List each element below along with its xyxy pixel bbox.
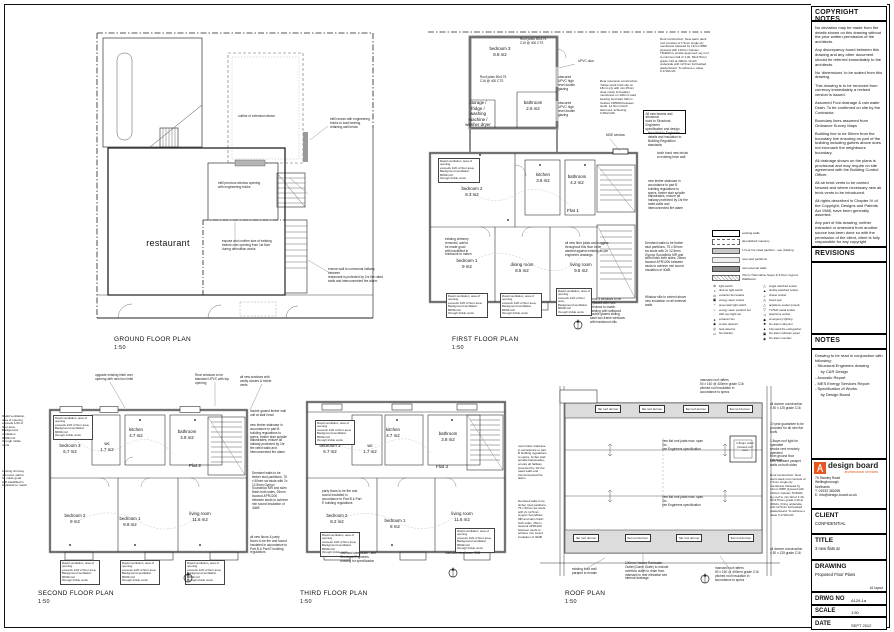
room-label-bathroom-top: bathroom 2.6 m2: [524, 100, 543, 111]
legend-symbol-icon: ◎: [712, 327, 717, 331]
legend: existing walls demolished masonry 1 hour…: [712, 230, 808, 342]
annotation-rear-windows: Rear windows to be standard UPVC with to…: [195, 374, 233, 386]
room-label-flat3: Flat 3: [436, 465, 448, 471]
copyright-paragraph: Building line to be 50mm from the bounda…: [815, 132, 883, 156]
legend-symbol-label: 13a rated fire extinguisher: [769, 328, 801, 331]
legend-symbol-label: TV/SAT aerial socket: [769, 309, 795, 312]
legend-symbol-icon: ◉: [712, 322, 717, 326]
legend-symbol-label: fire alarm sounder: [769, 337, 792, 340]
third-floor-plan-title: THIRD FLOOR PLAN 1:50: [300, 590, 368, 606]
annotation-staircase: new timber staircase in accordance to pa…: [648, 180, 688, 211]
firm-address: 76 Stanley RoadWellingboroughNorthantsT.…: [812, 474, 886, 497]
annotation-new-wall: New Wall to Engineers details and insula…: [648, 132, 682, 147]
legend-wall-row: existing walls: [712, 230, 808, 237]
legend-symbols-right: △ single switched socket ▲ double switch…: [762, 284, 808, 342]
annotation-rapid-vent-1: Rapid ventilation, area of opening excee…: [438, 158, 480, 183]
annotation-mansard-see: mansard steelbeam - see Structural Engin…: [340, 552, 388, 564]
legend-symbol-icon: ▲: [762, 327, 767, 331]
legend-symbol-icon: ◑: [712, 289, 717, 293]
date-value: SEPT 2012: [851, 620, 871, 628]
legend-symbol-icon: ▽: [762, 308, 767, 312]
annotation-front-parapet: existing front wall parapet to remain: [572, 568, 606, 576]
legend-symbol-icon: △: [762, 303, 767, 307]
drawing-value: Proposed Floor Plans: [812, 570, 886, 579]
plan-scale-text: 1:50: [114, 345, 191, 352]
plan-title-text: SECOND FLOOR PLAN: [38, 590, 114, 599]
drawing-sheet: restaurant outline of extension above in…: [0, 0, 894, 632]
drwg-no-value: A129-1a: [851, 595, 866, 603]
copyright-body: No deviation may be made from the detail…: [811, 21, 887, 247]
annotation-rapid-vent-3: Rapid ventilation, area of opening excee…: [455, 528, 495, 553]
drwg-no-section: DRWG NO A129-1a: [811, 592, 887, 605]
legend-wall-row: new stud partitions: [712, 257, 808, 264]
legend-symbol-row: ■ fire alarm call point: [762, 322, 808, 326]
legend-symbol-icon: ▣: [762, 332, 767, 336]
annotation-joist-span-1: new flat roof joists max. span 3m - see …: [662, 440, 704, 452]
revisions-header: REVISIONS: [811, 247, 887, 262]
plan-title-text: GROUND FLOOR PLAN: [114, 336, 191, 345]
annotation-rainwater-outlet: 100mm Harmer Rainwater Outlet (Dome Grat…: [625, 562, 670, 581]
room-label-bathroom: bathroom 4.2 m2: [568, 174, 587, 185]
dormer-label: flat roof dormer: [639, 405, 665, 413]
legend-symbol-icon: ▭: [712, 332, 717, 336]
room-label-dining: dining room 8.5 m2: [511, 262, 534, 273]
legend-symbol-icon: ◁: [762, 313, 767, 317]
legend-symbol-row: ◉ smoke detector: [712, 322, 758, 326]
plan-title-text: ROOF PLAN: [565, 590, 605, 599]
annotation-chimney: existing chimney removed, wall to be mad…: [445, 238, 473, 257]
wall-type-swatch: [712, 239, 740, 246]
annotation-dormer-construction-2: all dormer construction 4 50 x 125 grade…: [770, 548, 806, 556]
wall-type-swatch: [712, 257, 740, 264]
legend-symbol-label: light switch: [719, 285, 733, 288]
annotation-floors: all new floors & party floors to be fire…: [250, 536, 288, 555]
legend-symbol-label: LED spot light set: [719, 313, 741, 316]
legend-wall-row: 70mm Thermaline Super & 9.5mm Gyproc Wal…: [712, 274, 808, 281]
notes-line: by Design Board: [815, 393, 883, 398]
annotation-party-floors: party floors to be fire and sound insula…: [322, 490, 366, 505]
legend-symbol-label: extractor fan isolator: [719, 294, 744, 297]
copyright-paragraph: No deviation may be made from the detail…: [815, 26, 883, 45]
annotation-infill-window: infill previous window opening with engi…: [218, 182, 264, 190]
legend-symbol-label: fused spur: [769, 299, 782, 302]
legend-symbol-label: energy saver pendant set: [719, 309, 751, 312]
dormer-label: flat roof dormer: [728, 534, 754, 542]
room-label-wc: wc 1.7 m2: [100, 441, 113, 452]
wall-type-label: demolished masonry: [742, 240, 770, 243]
legend-symbol-label: fire alarm call point: [769, 323, 792, 326]
annotation-stair-glazed: double glazed timber wall unit at stair …: [250, 410, 290, 418]
legend-symbol-icon: ▲: [762, 289, 767, 293]
scale-section: SCALE 1:50: [811, 605, 887, 617]
legend-symbol-icon: ■: [762, 322, 767, 326]
notes-body: Drawing to be read in conjunction with f…: [811, 349, 887, 459]
annotation-rapid-vent-1: Rapid ventilation, area of opening excee…: [315, 420, 355, 445]
client-value: CONFIDENTIAL: [812, 519, 886, 528]
legend-wall-types: existing walls demolished masonry 1 hour…: [712, 230, 808, 281]
room-label-bedroom1: bedroom 1 9.8 m2: [120, 516, 141, 527]
room-label-living: living room 11.6 m2: [189, 511, 210, 522]
wall-type-swatch: [712, 230, 740, 237]
annotation-rafters-bottom: mansard roof rafters 50 x 150 @ 400mm gr…: [715, 567, 760, 582]
annotation-roof-joists-2: Roof joists 50x175 C16 @ 400 CTS: [480, 76, 512, 84]
copyright-paragraph: All drainage shown on the plans is provi…: [815, 159, 883, 178]
annotation-fire-wall: ensure wall to communal hallway between …: [328, 268, 386, 283]
roof-plan-title: ROOF PLAN 1:50: [565, 590, 605, 606]
first-floor-plan-title: FIRST FLOOR PLAN 1:50: [452, 336, 518, 352]
annotation-rafters-top: mansard roof rafters 50 x 150 @ 400mm gr…: [700, 379, 750, 394]
annotation-existing-beams: expose and confirm size of existing beam…: [222, 240, 274, 252]
annotation-obscured-glazing-1: obscured UPVC high level double glazing: [558, 76, 578, 91]
annotation-upvc-door: UPVC door: [578, 60, 602, 64]
client-section: CLIENT CONFIDENTIAL: [811, 509, 887, 534]
legend-symbol-label: heat detector: [719, 328, 735, 331]
roof-dormers-top: flat roof dormerflat roof dormerflat roo…: [595, 405, 753, 413]
wall-type-label: 1 hour fire rated partition - see drawin…: [742, 249, 794, 252]
legend-symbol-label: smoke detector: [719, 323, 738, 326]
copyright-paragraph: Boundary lines assumed from Ordnance Sur…: [815, 119, 883, 128]
room-label-bathroom: bathroom 3.8 m2: [178, 429, 197, 440]
north-arrow-icon: [700, 572, 710, 584]
legend-symbol-label: fire alarm indicator panel: [769, 332, 800, 335]
annotation-floor-joists: all new floor joists and noggins through…: [565, 242, 609, 257]
annotation-rapid-vent-4: Rapid ventilation, area of opening excee…: [556, 288, 592, 316]
legend-symbol-row: △ appliance socket (noted): [762, 303, 808, 307]
drwg-no-label: DRWG NO: [812, 594, 851, 604]
design-board-logo: [814, 462, 826, 474]
date-section: DATE SEPT 2012: [811, 617, 887, 630]
annotation-moe-window: MOE window: [606, 134, 632, 138]
legend-symbol-row: ◬ fused spur: [762, 298, 808, 302]
legend-wall-row: demolished masonry: [712, 239, 808, 246]
legend-symbol-label: appliance socket (noted): [769, 304, 799, 307]
plan-title-text: THIRD FLOOR PLAN: [300, 590, 368, 599]
firm-name: design board: [828, 462, 878, 470]
room-label-bedroom3: bedroom 3 8.8 m2: [490, 46, 511, 57]
dormer-label: flat roof dormer: [683, 405, 709, 413]
legend-symbol-icon: ●: [712, 318, 717, 322]
legend-symbol-icon: ◌: [712, 313, 717, 317]
room-label-bedroom1: bedroom 1 8 m2: [385, 518, 406, 529]
title-section: TITLE 3 new flats at: [811, 534, 887, 560]
annotation-roof-construction: Roof construction: New warm deck roof co…: [770, 474, 806, 517]
scale-label: SCALE: [812, 606, 851, 616]
room-label-kitchen: kitchen 4.7 m2: [129, 427, 143, 438]
room-label-bedroom2: bedroom 2 8.3 m2: [462, 186, 483, 197]
annotation-dormer-construction-1: all dormer construction 4 50 x 125 grade…: [770, 403, 806, 411]
legend-symbols: ⊘ light switch ◑ dimmer light switch ⊙ e…: [712, 284, 808, 342]
legend-wall-row: 1 hour fire rated partition - see drawin…: [712, 248, 808, 255]
ground-floor-plan-title: GROUND FLOOR PLAN 1:50: [114, 336, 191, 352]
notes-header: NOTES: [811, 334, 887, 349]
room-label-bedroom3: bedroom 3 6.7 m2: [60, 443, 81, 454]
annotation-rapid-vent-3: Rapid ventilation, area of opening excee…: [120, 560, 160, 585]
legend-symbol-row: ▣ energy saver socket: [712, 298, 758, 302]
legend-wall-row: new external walls: [712, 266, 808, 273]
room-label-living: living room 11.6 m2: [451, 511, 472, 522]
plan-scale-text: 1:50: [452, 345, 518, 352]
annotation-lintel: upgrade existing lintel over opening wit…: [95, 374, 139, 382]
title-label: TITLE: [812, 535, 886, 544]
legend-symbol-label: pneumatic light switch: [719, 304, 746, 307]
annotation-window-sills: Window sills to extend above new insulat…: [645, 296, 687, 308]
legend-symbols-left: ⊘ light switch ◑ dimmer light switch ⊙ e…: [712, 284, 758, 342]
annotation-staircase: new timber staircase in accordance to pa…: [250, 424, 288, 455]
title-value: 3 new flats at: [812, 544, 886, 553]
annotation-infill-recess: infill recess with engineering bricks to…: [330, 118, 384, 130]
annotation-roof-joists-1: Roof joists 50x175 C16 @ 400 CTS: [520, 38, 552, 46]
annotation-parapet-walls: new mansard parapet walls on both sides: [770, 460, 806, 468]
title-block: COPYRIGHT NOTES No deviation may be made…: [811, 4, 887, 628]
legend-symbol-label: telephone socket: [769, 313, 790, 316]
copyright-paragraph: Any part of this drawing, neither extrac…: [815, 221, 883, 249]
plan-scale-text: 1:50: [300, 599, 368, 606]
annotation-extension-outline: outline of extension above: [238, 115, 278, 119]
legend-symbol-icon: ◔: [712, 303, 717, 307]
annotation-rapid-vent-1: Rapid ventilation, area of opening excee…: [53, 415, 93, 440]
annotation-velux-vent: 1.8sqm velux pivoted roof vent: [733, 442, 757, 453]
wall-type-label: existing walls: [742, 232, 760, 235]
room-label-flat2: Flat 2: [189, 464, 201, 470]
dormer-label: flat roof dormer: [573, 534, 599, 542]
room-label-flat1: Flat 1: [567, 209, 579, 215]
copyright-paragraph: All rights described in Chapter IV of th…: [815, 199, 883, 218]
dormer-label: flat roof dormer: [595, 405, 621, 413]
wall-type-swatch: [712, 248, 740, 255]
drawing-section: DRAWING Proposed Floor Plans A1 layout: [811, 560, 887, 592]
dormer-label: flat roof dormer: [676, 534, 702, 542]
legend-symbol-label: fire blanket: [719, 332, 733, 335]
annotation-chimney-margin: existing chimney removed, wall to be mad…: [2, 470, 28, 488]
annotation-new-windows: all new windows with cavity closers & tr…: [240, 376, 276, 388]
legend-symbol-label: extractor fan: [719, 318, 735, 321]
legend-symbol-icon: ▣: [712, 298, 717, 302]
plan-scale-text: 1:50: [38, 599, 114, 606]
dormer-label: flat roof dormer: [625, 534, 651, 542]
annotation-tooth-bond: tooth bond new bricks to existing brick …: [657, 152, 697, 160]
legend-symbol-row: ▭ fire blanket: [712, 332, 758, 336]
annotation-front-windows: Front 4 windows to be replaced with new …: [590, 298, 636, 325]
north-arrow-icon: [183, 571, 193, 583]
copyright-header: COPYRIGHT NOTES: [811, 6, 887, 21]
plan-scale-text: 1:50: [565, 599, 605, 606]
wall-type-label: new stud partitions: [742, 258, 767, 261]
plan-title-text: FIRST FLOOR PLAN: [452, 336, 518, 345]
firm-block: design board architectural services 76 S…: [811, 459, 887, 509]
annotation-rapid-vent-2: Rapid ventilation, area of opening excee…: [60, 560, 100, 585]
legend-symbol-label: dimmer light switch: [719, 289, 743, 292]
annotation-guarantee: 10 year guarantee to be provided for all…: [770, 423, 806, 435]
legend-symbol-icon: △: [762, 284, 767, 288]
annotation-rapid-vent-margin: Rapid ventilation, area of opening excee…: [2, 415, 28, 447]
legend-symbol-icon: ◬: [762, 298, 767, 302]
firm-logo-row: design board architectural services: [812, 460, 886, 474]
room-label-kitchen: kitchen 3.6 m2: [536, 172, 550, 183]
wall-type-label: 70mm Thermaline Super & 9.5mm Gyproc Wal…: [742, 274, 808, 281]
notes-line: - Acoustic Report: [815, 376, 883, 381]
revisions-body: [811, 262, 887, 334]
room-label-living: living room 9.5 m2: [570, 262, 591, 273]
north-arrow-icon: [573, 318, 583, 330]
legend-symbol-icon: ⊙: [712, 294, 717, 298]
copyright-paragraph: No 'dimensions' to be scaled from this d…: [815, 71, 883, 80]
legend-symbol-label: shaver socket: [769, 294, 786, 297]
annotation-obscured-glazing-2: obscured UPVC high level double glazing: [558, 102, 578, 117]
annotation-demised-walls: Demised walls to be timber stud partitio…: [252, 472, 288, 510]
second-floor-plan-title: SECOND FLOOR PLAN 1:50: [38, 590, 114, 606]
legend-symbol-row: ◉ fire alarm sounder: [762, 337, 808, 341]
legend-symbol-label: single switched socket: [769, 285, 797, 288]
legend-symbol-label: double switched socket: [769, 289, 798, 292]
room-label-bedroom1: bedroom 1 9 m2: [457, 258, 478, 269]
firm-address-line: E. info@design-board.co.uk: [815, 493, 883, 497]
room-label-bathroom: bathroom 3.8 m2: [439, 431, 458, 442]
room-label-wc: wc 1.7 m2: [363, 443, 376, 454]
annotation-joist-span-2: new flat roof joists max. span 3m - see …: [662, 496, 704, 508]
legend-symbol-row: ◔ pneumatic light switch: [712, 303, 758, 307]
roof-dormers-bottom: flat roof dormerflat roof dormerflat roo…: [573, 534, 754, 542]
annotation-rapid-vent-3: Rapid ventilation, area of opening excee…: [500, 293, 542, 318]
room-label-restaurant: restaurant: [146, 238, 190, 249]
copyright-paragraph: Assumed Foul drainage & rain water Drain…: [815, 101, 883, 115]
legend-symbol-label: emergency lighting: [769, 318, 792, 321]
legend-symbol-icon: ⊘: [712, 284, 717, 288]
wall-type-swatch: [712, 266, 740, 273]
date-label: DATE: [812, 619, 851, 629]
annotation-rapid-vent-2: Rapid ventilation, area of opening excee…: [446, 293, 488, 318]
client-label: CLIENT: [812, 510, 886, 519]
room-label-bedroom2: bedroom 2 8.2 m2: [327, 513, 348, 524]
annotation-roof-construction: Roof construction: New warm deck roof co…: [660, 38, 710, 74]
legend-symbol-label: energy saver socket: [719, 299, 744, 302]
layout-note: A1 layout: [870, 586, 883, 590]
room-label-bedroom2: bedroom 2 9 m2: [65, 513, 86, 524]
firm-tagline: architectural services: [828, 470, 878, 474]
copyright-paragraph: All air brick vents to be carried forwar…: [815, 181, 883, 195]
legend-symbol-icon: ◆: [762, 318, 767, 322]
copyright-paragraph: This drawing is to be removed from curre…: [815, 84, 883, 98]
room-label-storage: storage / fridge / washing machine / was…: [465, 100, 490, 128]
wall-type-label: new external walls: [742, 267, 767, 270]
notes-line: Drawing to be read in conjunction with f…: [815, 354, 883, 363]
annotation-demised-walls: Demised walls to be timber stud partitio…: [645, 242, 687, 273]
copyright-paragraph: Any discrepancy found between this drawi…: [815, 48, 883, 67]
annotation-mansard-ssb: mansard steelbeam SSB: [445, 552, 485, 556]
wall-type-swatch: [712, 275, 740, 282]
annotation-rear-extension: Rear extension construction: Yellow stoc…: [600, 80, 640, 116]
scale-value: 1:50: [851, 607, 859, 615]
dormer-label: flat roof dormer: [727, 405, 753, 413]
drawing-label: DRAWING: [812, 561, 886, 570]
room-label-kitchen: kitchen 4.7 m2: [386, 427, 400, 438]
legend-symbol-icon: ◉: [762, 337, 767, 341]
legend-symbol-icon: ○: [712, 308, 717, 312]
legend-symbol-icon: ▵: [762, 294, 767, 298]
north-arrow-icon: [448, 566, 458, 578]
